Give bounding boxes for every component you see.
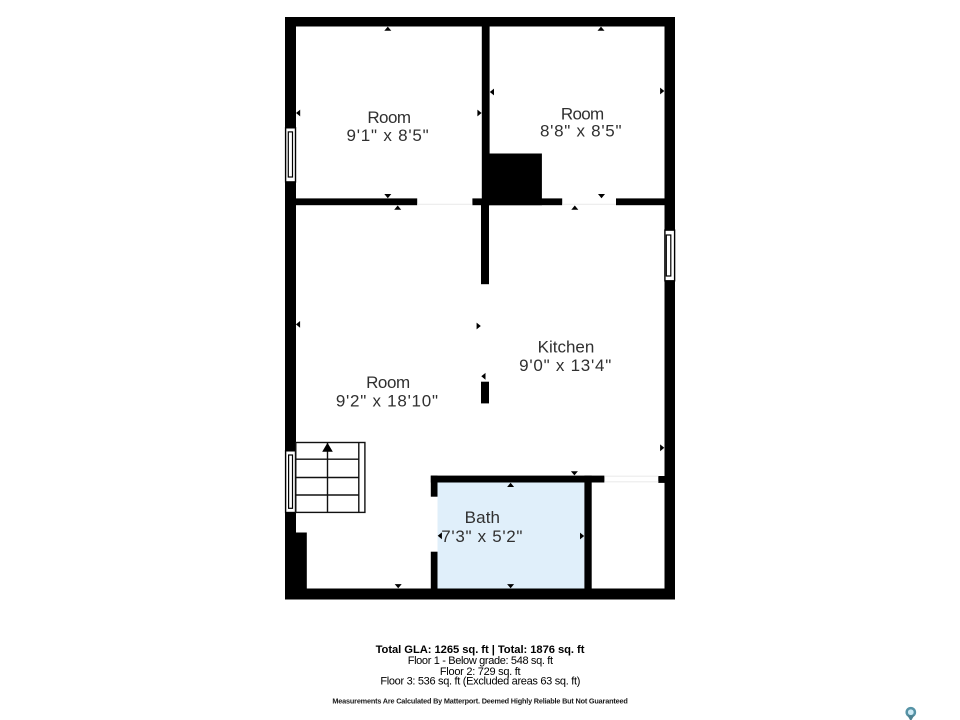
svg-text:Bath: Bath bbox=[465, 508, 501, 527]
svg-text:Floor 3: 536 sq. ft (Excluded: Floor 3: 536 sq. ft (Excluded areas 63 s… bbox=[380, 676, 580, 688]
svg-text:Room: Room bbox=[366, 373, 410, 392]
svg-text:8'8" x 8'5": 8'8" x 8'5" bbox=[540, 121, 622, 140]
svg-text:9'1" x 8'5": 9'1" x 8'5" bbox=[347, 126, 430, 145]
svg-text:9'0" x 13'4": 9'0" x 13'4" bbox=[519, 356, 612, 375]
svg-text:Room: Room bbox=[367, 108, 411, 127]
svg-text:Measurements Are Calculated By: Measurements Are Calculated By Matterpor… bbox=[332, 696, 627, 705]
svg-text:7'3" x 5'2": 7'3" x 5'2" bbox=[441, 527, 523, 546]
svg-text:9'2" x 18'10": 9'2" x 18'10" bbox=[336, 392, 439, 411]
svg-text:Kitchen: Kitchen bbox=[538, 337, 595, 356]
